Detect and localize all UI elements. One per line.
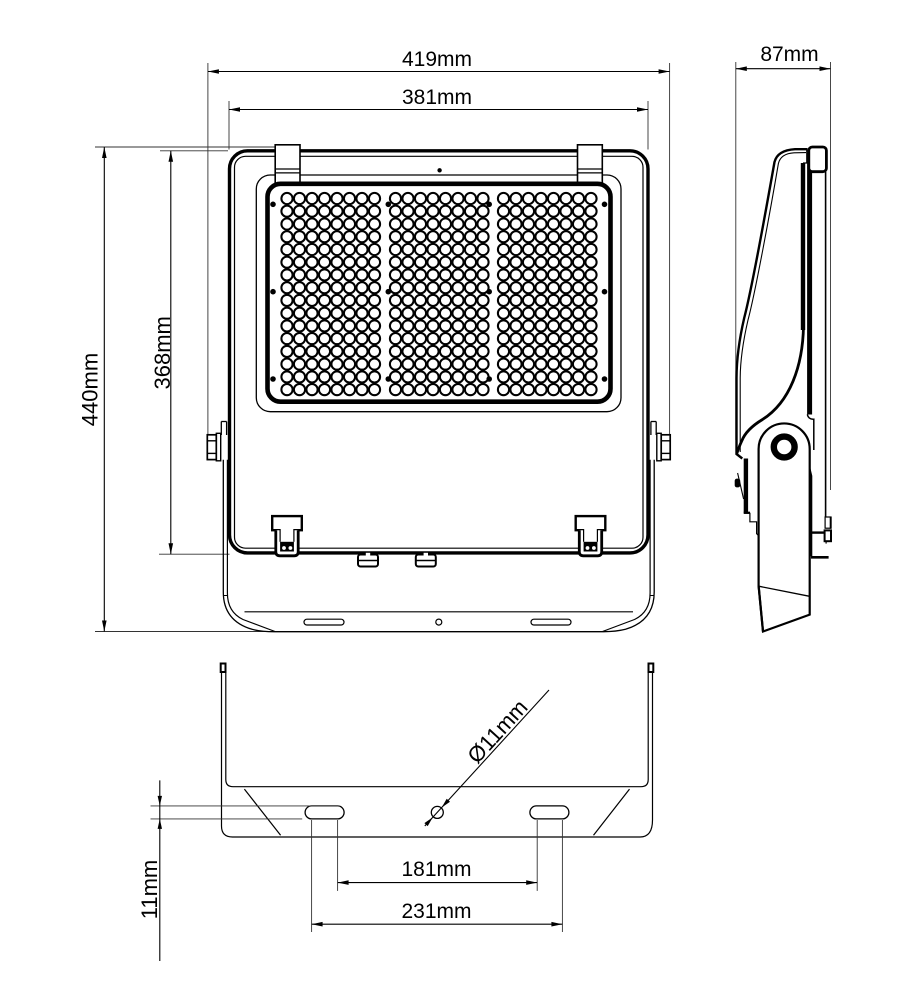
svg-text:440mm: 440mm [77, 353, 102, 426]
svg-text:368mm: 368mm [150, 316, 175, 389]
svg-text:11mm: 11mm [137, 860, 162, 920]
svg-text:181mm: 181mm [401, 858, 471, 881]
svg-text:231mm: 231mm [401, 900, 471, 923]
svg-text:87mm: 87mm [760, 43, 818, 66]
svg-text:419mm: 419mm [402, 48, 472, 71]
svg-text:381mm: 381mm [402, 86, 472, 109]
